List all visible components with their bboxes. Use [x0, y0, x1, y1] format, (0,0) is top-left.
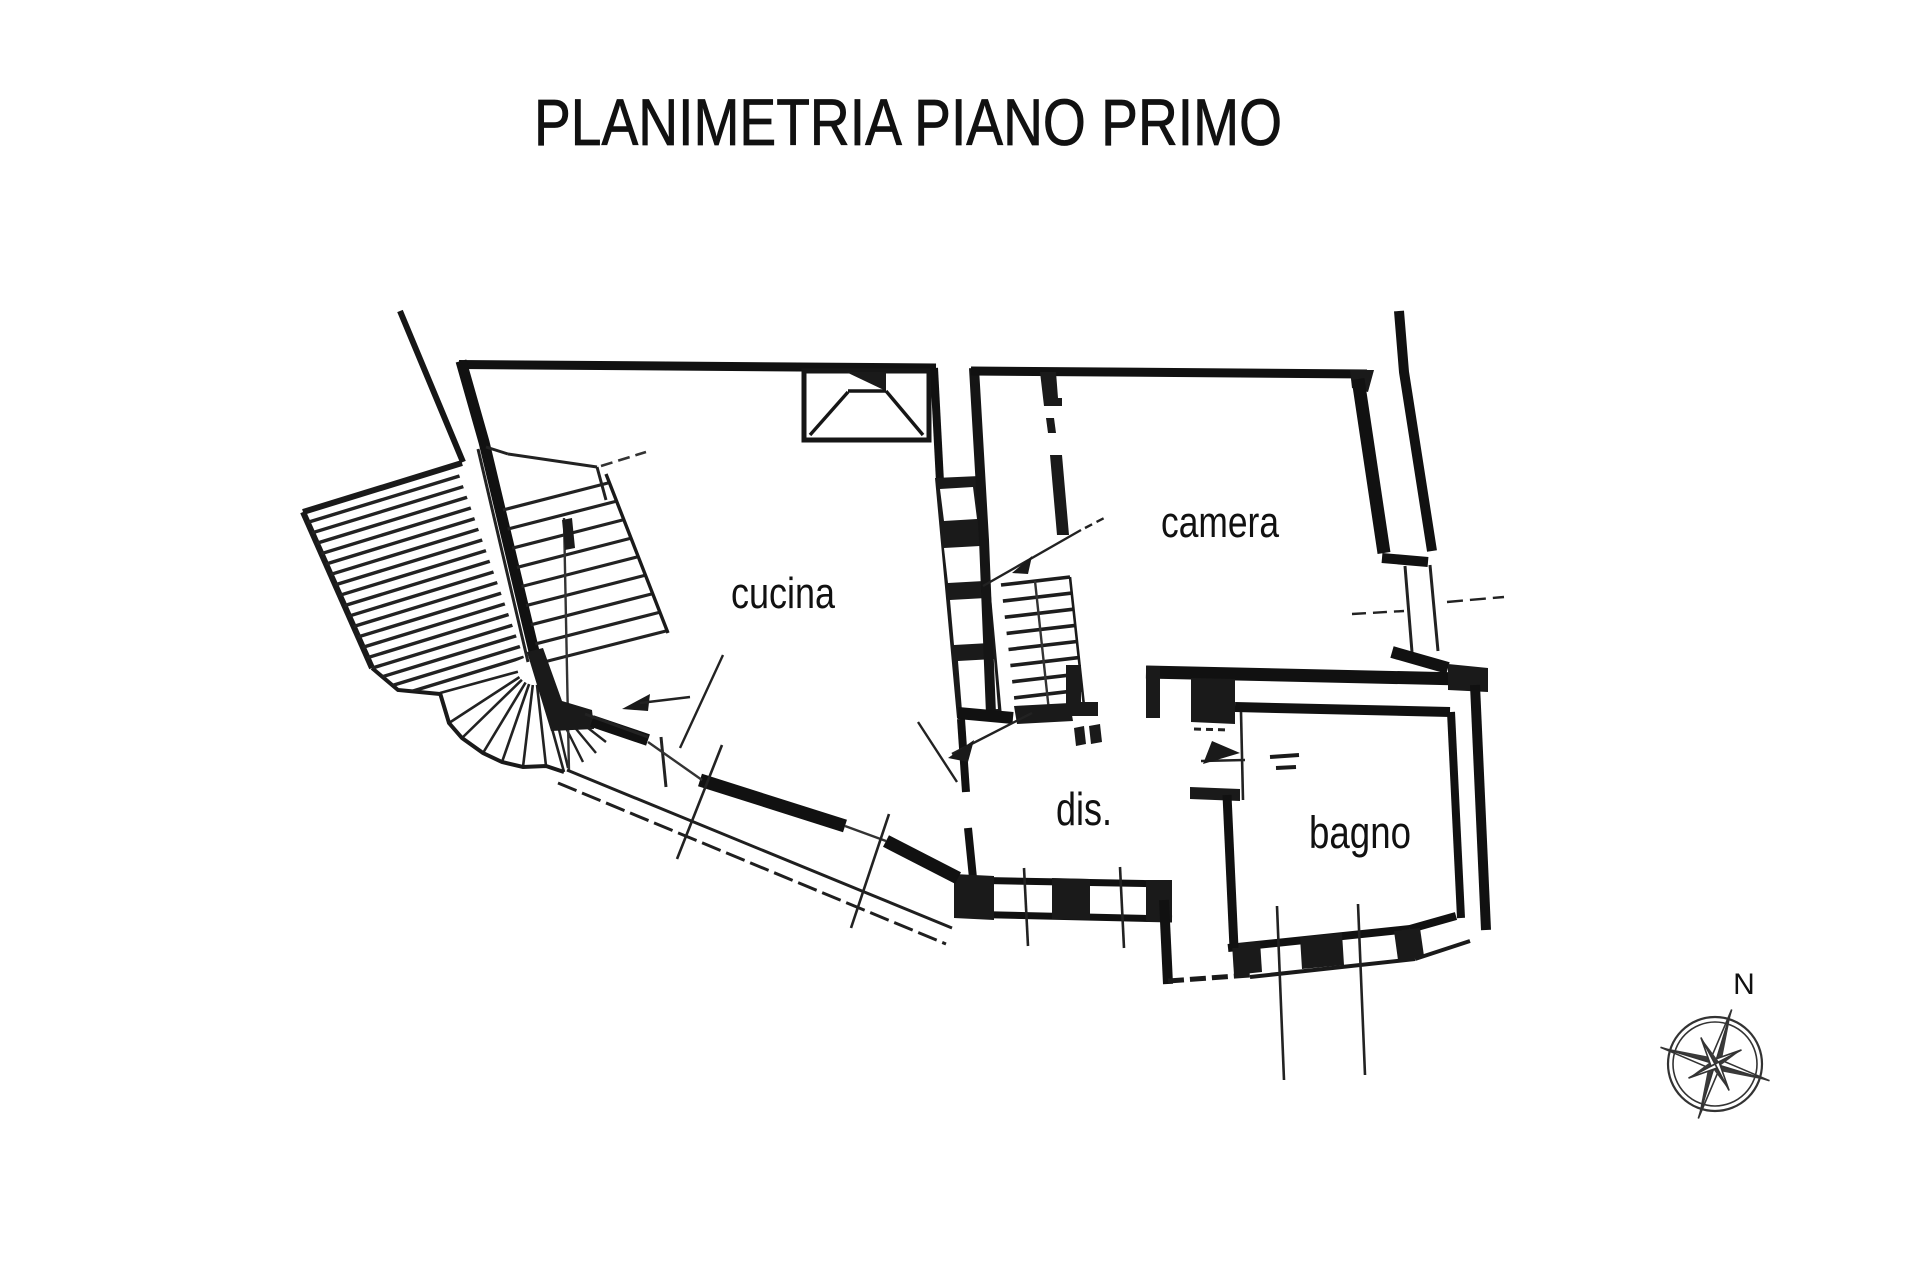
- svg-text:cucina: cucina: [731, 569, 835, 618]
- svg-text:dis.: dis.: [1056, 783, 1112, 835]
- svg-text:bagno: bagno: [1309, 807, 1411, 858]
- svg-text:camera: camera: [1161, 498, 1279, 547]
- svg-text:PLANIMETRIA PIANO PRIMO: PLANIMETRIA PIANO PRIMO: [534, 85, 1282, 159]
- svg-text:N: N: [1733, 968, 1755, 1001]
